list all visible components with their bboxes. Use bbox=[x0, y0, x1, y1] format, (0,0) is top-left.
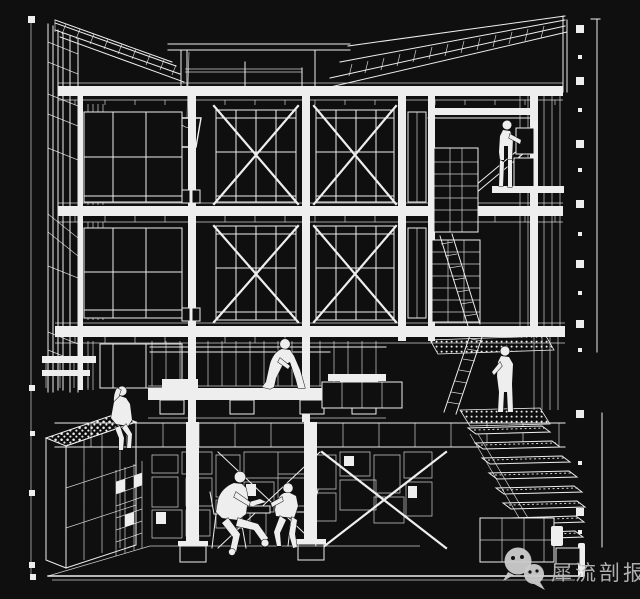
window-grids-middle-floor bbox=[84, 222, 426, 320]
screenshot-root: 犀流剖报 bbox=[0, 0, 640, 599]
section-perspective-drawing: 犀流剖报 bbox=[0, 0, 640, 599]
watermark-text: 犀流剖报 bbox=[551, 561, 640, 585]
